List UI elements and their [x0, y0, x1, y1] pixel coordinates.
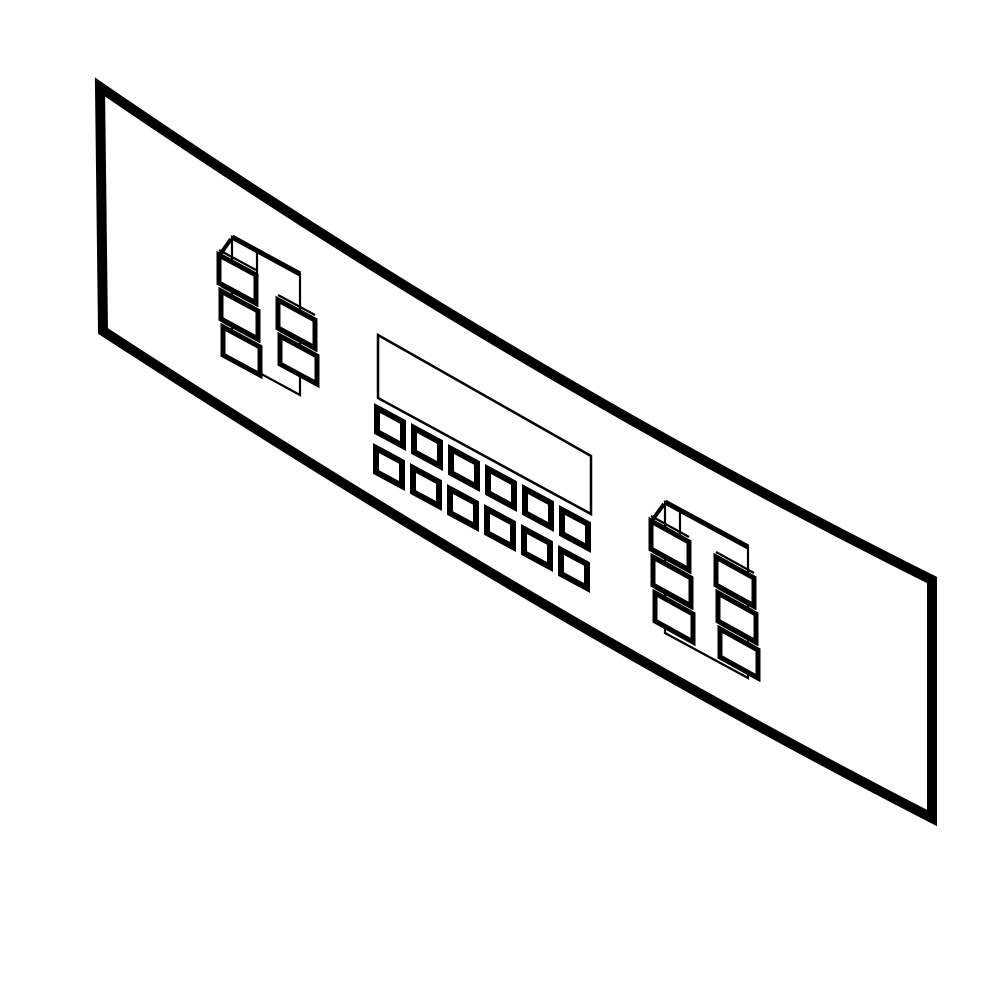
control-panel-line-drawing — [0, 0, 1000, 1000]
control-panel-diagram-canvas — [0, 0, 1000, 1000]
